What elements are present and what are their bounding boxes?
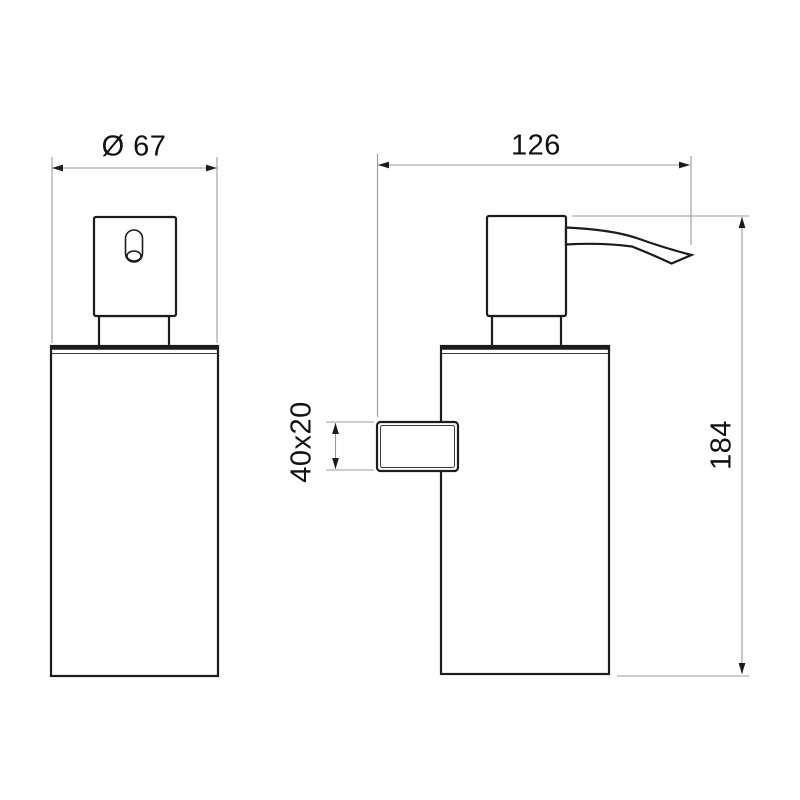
- technical-drawing-canvas: Ø 67 126 184 40x20: [0, 0, 800, 800]
- dimension-bracket-40x20: [326, 422, 374, 470]
- bracket-arrow-bottom: [332, 458, 339, 469]
- front-view: [51, 217, 218, 676]
- front-neck: [99, 316, 169, 347]
- side-body: [441, 346, 609, 674]
- bracket-arrow-top: [332, 423, 339, 434]
- dim-label-height: 184: [708, 420, 737, 470]
- diameter-arrow-left: [52, 165, 63, 172]
- front-outlet-slot: [126, 230, 143, 262]
- side-neck: [492, 316, 561, 347]
- height-arrow-bottom: [739, 663, 746, 674]
- side-spout: [566, 228, 692, 264]
- depth-arrow-right: [679, 162, 690, 169]
- dim-label-diameter: Ø 67: [102, 133, 167, 162]
- side-pump-head: [487, 216, 566, 316]
- height-arrow-top: [739, 217, 746, 228]
- dim-label-bracket: 40x20: [288, 401, 317, 483]
- drawing-svg: [0, 0, 800, 800]
- front-body: [51, 346, 218, 676]
- diameter-arrow-right: [206, 165, 217, 172]
- dim-label-depth: 126: [511, 132, 561, 161]
- side-view: [377, 216, 692, 674]
- depth-arrow-left: [378, 162, 389, 169]
- side-wall-bracket: [377, 422, 458, 471]
